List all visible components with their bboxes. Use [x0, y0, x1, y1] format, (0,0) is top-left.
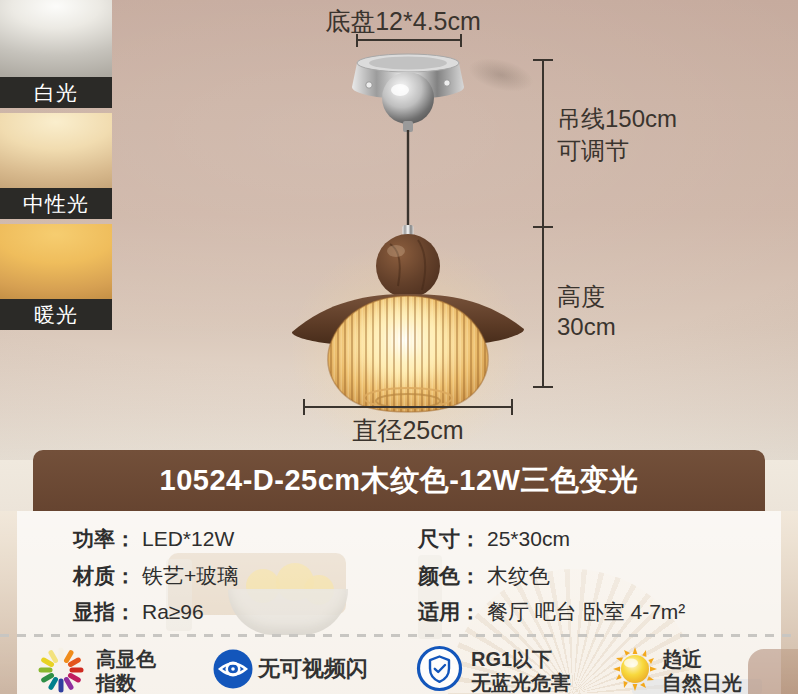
light-mode-swatch-neutral: 中性光	[0, 113, 112, 219]
product-title: 10524-D-25cm木纹色-12W三色变光	[160, 461, 639, 501]
height-label-line2: 30cm	[557, 313, 616, 341]
feature-line: 高显色	[96, 647, 156, 671]
base-dimension-line	[356, 39, 462, 41]
dim-tick	[303, 399, 305, 415]
spec-row-power: 功率：LED*12W	[73, 525, 234, 553]
spec-row-size: 尺寸：25*30cm	[418, 525, 570, 553]
diameter-dimension-label: 直径25cm	[308, 414, 508, 447]
feature-high-cri-text: 高显色 指数	[96, 647, 156, 694]
blue-light-shield-icon	[416, 645, 463, 692]
no-flicker-eye-icon	[213, 649, 253, 689]
pendant-lamp-illustration	[258, 48, 558, 420]
dim-tick	[533, 386, 553, 388]
feature-daylight-text: 趋近 自然日光	[662, 647, 742, 694]
spec-label: 材质：	[73, 564, 136, 587]
spec-value: 餐厅 吧台 卧室 4-7m²	[487, 600, 685, 623]
dim-tick	[511, 399, 513, 415]
warm-light-photo	[0, 224, 112, 299]
diameter-dimension-line	[303, 406, 513, 408]
high-cri-burst-icon	[36, 645, 86, 694]
feature-line: 趋近	[662, 647, 742, 671]
dim-tick	[460, 34, 462, 47]
dim-tick	[356, 34, 358, 47]
spec-value: LED*12W	[142, 527, 234, 550]
wire-length-label-line1: 吊线150cm	[557, 103, 677, 135]
wire-length-label-line2: 可调节	[557, 135, 629, 167]
height-label-line1: 高度	[557, 281, 605, 313]
spec-section: 功率：LED*12W 材质：铁艺+玻璃 显指：Ra≥96 尺寸：25*30cm …	[0, 511, 798, 694]
spec-row-color: 颜色：木纹色	[418, 562, 550, 590]
dashed-divider	[0, 634, 798, 637]
spec-label: 尺寸：	[418, 527, 481, 550]
feature-line: RG1以下	[471, 647, 571, 671]
warm-light-label: 暖光	[0, 299, 112, 330]
feature-line: 无蓝光危害	[471, 671, 571, 694]
spec-label: 功率：	[73, 527, 136, 550]
spec-row-usage: 适用：餐厅 吧台 卧室 4-7m²	[418, 598, 685, 626]
ceiling-canopy	[352, 54, 464, 132]
neutral-light-photo	[0, 113, 112, 188]
feature-blue-light-text: RG1以下 无蓝光危害	[471, 647, 571, 694]
dim-tick	[533, 226, 553, 228]
feature-line: 自然日光	[662, 671, 742, 694]
spec-row-material: 材质：铁艺+玻璃	[73, 562, 238, 590]
light-mode-swatch-white: 白光	[0, 0, 112, 108]
light-mode-swatch-warm: 暖光	[0, 224, 112, 330]
white-light-label: 白光	[0, 77, 112, 108]
daylight-sun-icon	[613, 647, 657, 691]
dim-tick	[533, 59, 553, 61]
feature-line: 指数	[96, 671, 156, 694]
spec-value: 25*30cm	[487, 527, 570, 550]
feature-no-flicker-text: 无可视频闪	[258, 649, 368, 689]
spec-value: 铁艺+玻璃	[142, 564, 238, 587]
spec-value: 木纹色	[487, 564, 550, 587]
product-detail-image: 白光 中性光 暖光	[0, 0, 798, 694]
product-title-banner: 10524-D-25cm木纹色-12W三色变光	[33, 450, 765, 511]
spec-label: 显指：	[73, 600, 136, 623]
height-dimension-line	[542, 60, 544, 388]
feature-line: 无可视频闪	[258, 649, 368, 689]
white-light-photo	[0, 0, 112, 77]
wood-ball	[376, 234, 440, 298]
neutral-light-label: 中性光	[0, 188, 112, 219]
spec-label: 颜色：	[418, 564, 481, 587]
spec-row-cri: 显指：Ra≥96	[73, 598, 204, 626]
spec-value: Ra≥96	[142, 600, 204, 623]
base-dimension-label: 底盘12*4.5cm	[303, 5, 503, 38]
spec-label: 适用：	[418, 600, 481, 623]
